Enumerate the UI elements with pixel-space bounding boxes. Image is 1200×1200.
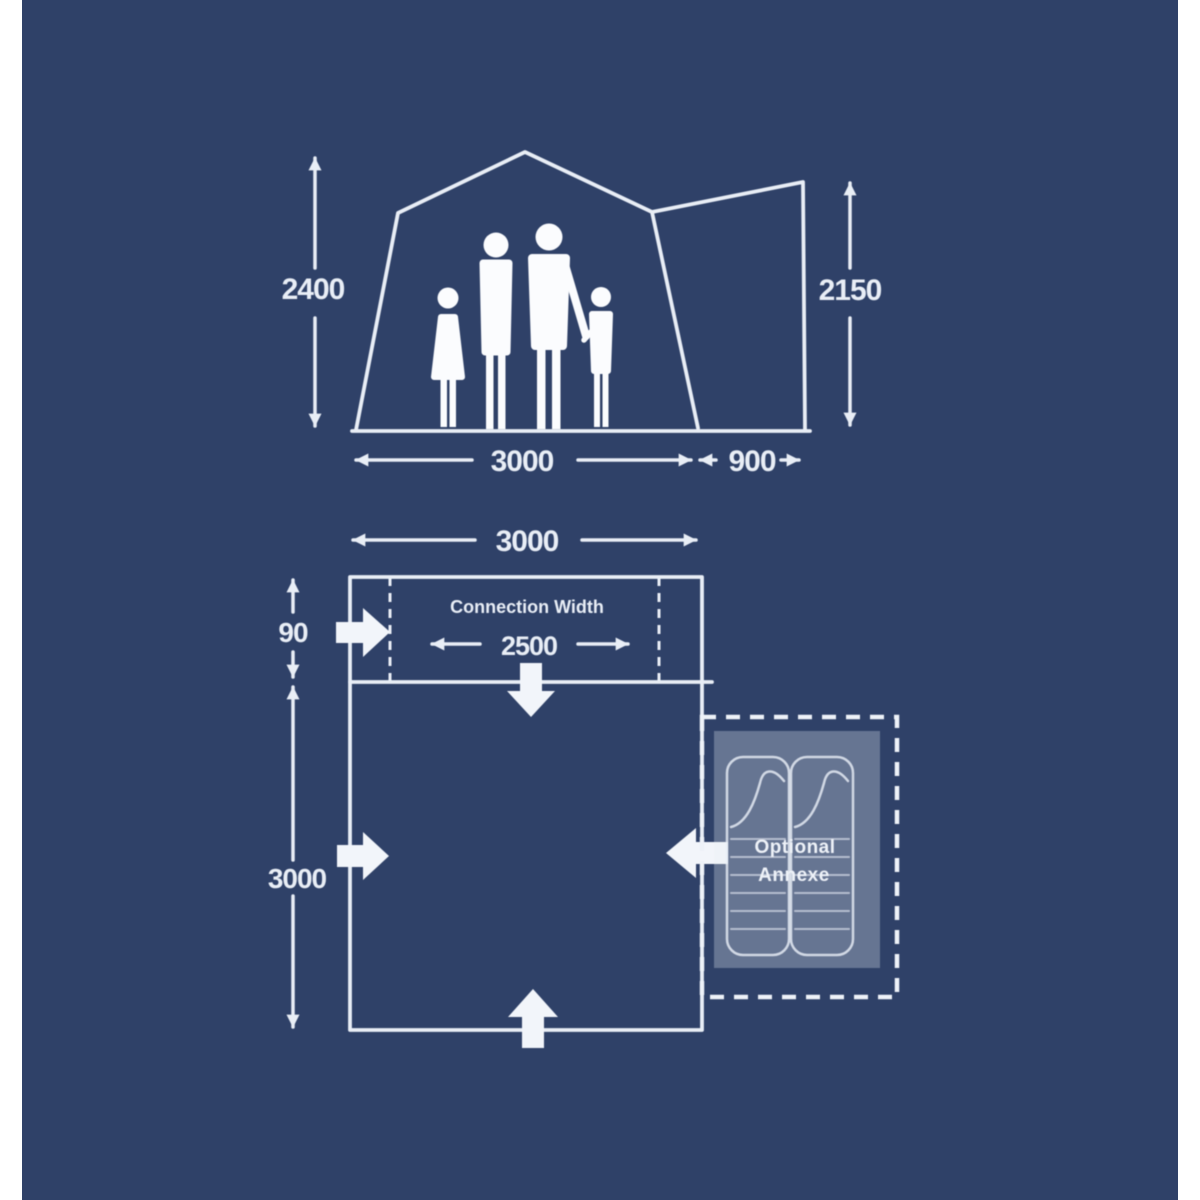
elevation-view: 2400 2150 3000 900 xyxy=(282,152,882,478)
family-silhouette xyxy=(434,224,611,430)
person-man xyxy=(536,224,563,251)
tent-annexe-canopy xyxy=(652,182,805,429)
entry-arrow-connection-left xyxy=(336,608,390,657)
dim-height-main-label: 2400 xyxy=(282,273,345,306)
entry-arrow-front-up xyxy=(508,989,558,1048)
dim-plan-width: 3000 xyxy=(353,525,696,558)
tent-main-body xyxy=(356,152,698,430)
entry-arrow-connection-down xyxy=(507,663,555,717)
dim-width-annexe: 900 xyxy=(700,445,799,478)
connection-width-value: 2500 xyxy=(501,631,557,661)
dim-width-main: 3000 xyxy=(356,445,691,478)
person-woman-small xyxy=(438,288,459,309)
dim-width-main-label: 3000 xyxy=(491,445,554,478)
person-woman xyxy=(484,233,509,258)
dim-plan-depth: 3000 xyxy=(268,687,327,1027)
dim-connection-depth-label: 90 xyxy=(278,617,308,648)
dim-plan-width-label: 3000 xyxy=(496,525,559,558)
dim-width-annexe-label: 900 xyxy=(728,445,775,478)
door-arrows xyxy=(336,608,728,1048)
person-child xyxy=(591,287,611,307)
floorplan-view: 3000 Connection Width 2500 90 3000 xyxy=(268,525,897,1048)
dim-height-annexe: 2150 xyxy=(819,183,882,425)
entry-arrow-side-left xyxy=(337,832,389,880)
connection-width-title: Connection Width xyxy=(450,597,604,617)
tent-dimensions-diagram: 2400 2150 3000 900 3000 xyxy=(0,0,1200,1200)
optional-annexe: Optional Annexe xyxy=(702,717,897,997)
annexe-label-line1: Optional xyxy=(754,837,835,858)
dim-height-annexe-label: 2150 xyxy=(819,274,882,307)
dim-plan-depth-label: 3000 xyxy=(268,863,327,894)
dim-height-main: 2400 xyxy=(282,158,345,426)
dim-connection-depth: 90 xyxy=(278,580,308,677)
annexe-label-line2: Annexe xyxy=(758,865,830,886)
tent-outline xyxy=(352,152,810,431)
connection-width-group: Connection Width 2500 xyxy=(432,597,628,661)
